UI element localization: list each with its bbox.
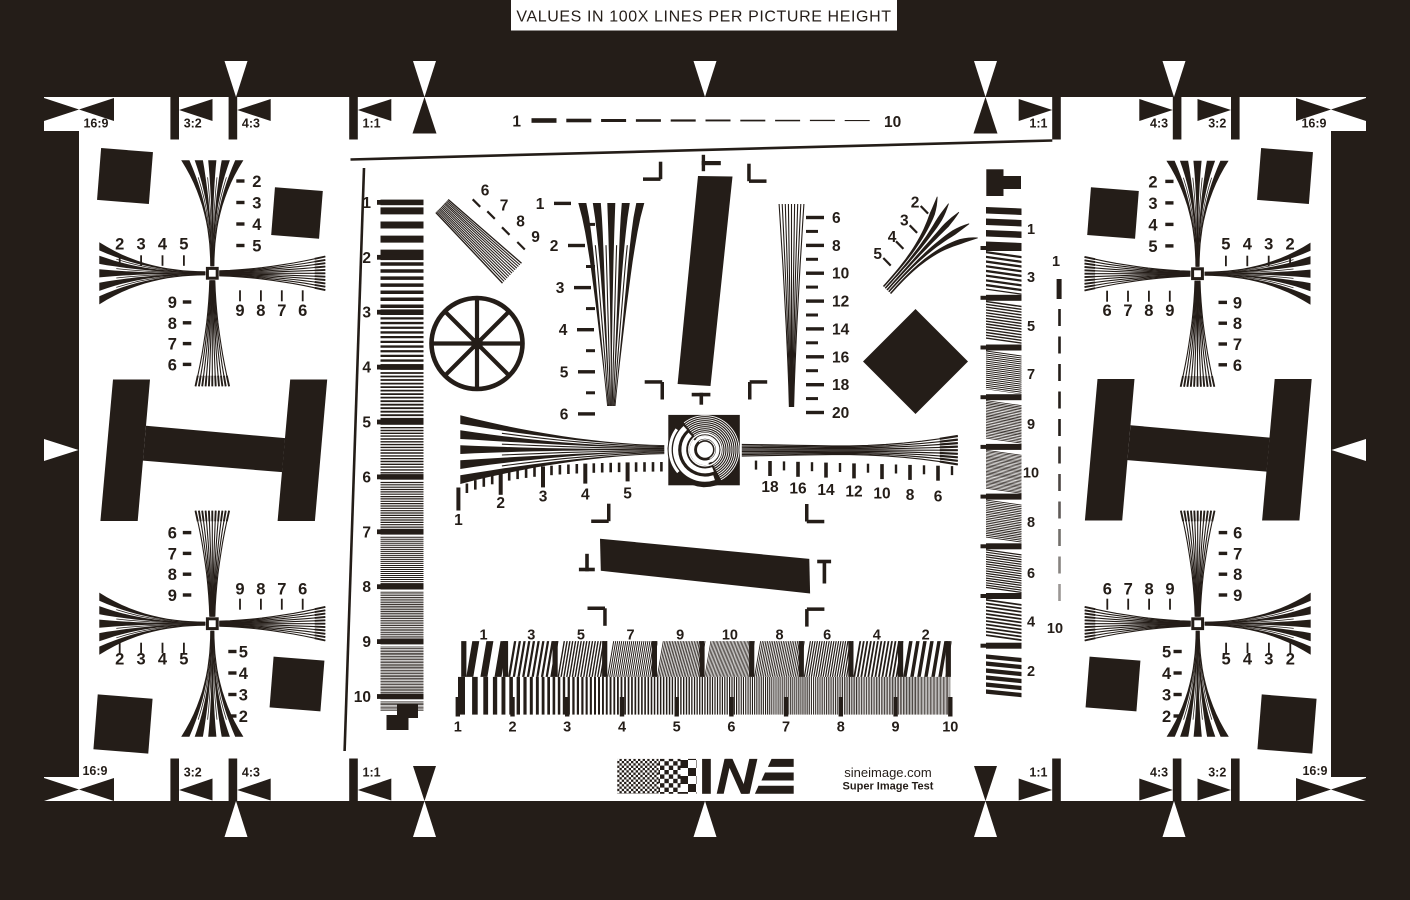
svg-text:9: 9 [1165, 302, 1174, 320]
svg-text:3: 3 [1162, 687, 1171, 705]
svg-text:7: 7 [362, 524, 371, 541]
svg-text:1:1: 1:1 [363, 117, 381, 131]
svg-text:4:3: 4:3 [242, 766, 260, 780]
svg-text:2: 2 [1286, 651, 1295, 669]
svg-text:1:1: 1:1 [363, 766, 381, 780]
svg-text:6: 6 [823, 628, 831, 644]
svg-text:4: 4 [158, 651, 168, 669]
svg-text:3: 3 [556, 280, 565, 297]
svg-text:1: 1 [454, 512, 463, 529]
svg-text:5: 5 [1027, 319, 1035, 335]
svg-text:18: 18 [761, 479, 779, 496]
svg-text:18: 18 [832, 377, 850, 394]
svg-text:4: 4 [1162, 665, 1172, 683]
svg-text:6: 6 [727, 720, 735, 736]
svg-text:4:3: 4:3 [1150, 117, 1168, 131]
svg-text:8: 8 [1233, 315, 1242, 333]
svg-text:7: 7 [782, 720, 790, 736]
svg-text:5: 5 [673, 720, 681, 736]
svg-text:5: 5 [239, 644, 248, 662]
svg-text:8: 8 [832, 238, 841, 255]
svg-text:2: 2 [239, 708, 248, 726]
svg-text:2: 2 [550, 238, 559, 255]
svg-text:10: 10 [722, 628, 738, 644]
svg-text:VALUES IN 100X LINES PER PICTU: VALUES IN 100X LINES PER PICTURE HEIGHT [516, 9, 891, 26]
svg-text:14: 14 [832, 321, 850, 338]
svg-text:8: 8 [516, 214, 525, 231]
svg-text:1: 1 [536, 196, 545, 213]
svg-text:10: 10 [832, 266, 849, 283]
svg-text:20: 20 [832, 405, 849, 422]
svg-text:8: 8 [168, 315, 177, 333]
svg-text:6: 6 [1103, 302, 1112, 320]
svg-text:4: 4 [158, 235, 168, 253]
svg-text:8: 8 [906, 487, 915, 504]
svg-text:1: 1 [454, 720, 462, 736]
svg-text:3: 3 [1264, 236, 1273, 254]
svg-text:5: 5 [179, 235, 188, 253]
svg-text:2: 2 [362, 250, 371, 267]
svg-text:2: 2 [1148, 173, 1157, 191]
svg-text:4: 4 [1243, 236, 1253, 254]
svg-text:6: 6 [481, 183, 490, 200]
svg-text:9: 9 [1233, 587, 1242, 605]
svg-text:2: 2 [115, 235, 124, 253]
svg-text:2: 2 [922, 628, 930, 644]
svg-text:5: 5 [362, 415, 371, 432]
svg-text:7: 7 [277, 581, 286, 599]
svg-text:4: 4 [618, 720, 626, 736]
svg-text:5: 5 [179, 651, 188, 669]
svg-text:7: 7 [168, 336, 177, 354]
svg-text:3: 3 [900, 213, 909, 230]
svg-text:12: 12 [845, 484, 862, 501]
svg-text:1: 1 [362, 195, 371, 212]
svg-text:3: 3 [1027, 270, 1035, 286]
svg-text:14: 14 [817, 482, 835, 499]
svg-text:3: 3 [539, 489, 548, 506]
svg-text:6: 6 [1103, 581, 1112, 599]
svg-text:12: 12 [832, 294, 849, 311]
svg-text:6: 6 [1233, 525, 1242, 543]
svg-text:9: 9 [235, 581, 244, 599]
svg-text:9: 9 [1027, 417, 1035, 433]
svg-text:10: 10 [884, 114, 901, 131]
svg-text:7: 7 [1233, 336, 1242, 354]
svg-text:6: 6 [168, 525, 177, 543]
svg-text:1: 1 [1027, 222, 1035, 238]
svg-text:7: 7 [1027, 367, 1035, 383]
svg-text:5: 5 [1221, 236, 1230, 254]
svg-text:4:3: 4:3 [1150, 766, 1168, 780]
svg-text:3:2: 3:2 [184, 117, 202, 131]
svg-text:5: 5 [873, 246, 882, 263]
svg-text:3: 3 [563, 720, 571, 736]
svg-text:3:2: 3:2 [1208, 117, 1226, 131]
svg-text:3: 3 [137, 235, 146, 253]
svg-text:2: 2 [252, 173, 261, 191]
svg-text:8: 8 [256, 302, 265, 320]
svg-text:2: 2 [1286, 236, 1295, 254]
svg-text:3: 3 [362, 305, 371, 322]
svg-text:4: 4 [239, 665, 249, 683]
svg-text:9: 9 [235, 302, 244, 320]
svg-text:10: 10 [354, 689, 371, 706]
svg-text:9: 9 [531, 229, 540, 246]
svg-text:4: 4 [1243, 651, 1253, 669]
svg-text:8: 8 [1027, 515, 1035, 531]
svg-text:8: 8 [1144, 302, 1153, 320]
svg-text:3:2: 3:2 [184, 766, 202, 780]
svg-text:4:3: 4:3 [242, 117, 260, 131]
svg-text:6: 6 [1027, 566, 1035, 582]
svg-text:6: 6 [934, 489, 943, 506]
svg-text:5: 5 [1222, 651, 1231, 669]
svg-text:5: 5 [1148, 238, 1157, 256]
svg-text:6: 6 [168, 356, 177, 374]
svg-text:7: 7 [627, 628, 635, 644]
svg-text:4: 4 [873, 628, 881, 644]
svg-text:8: 8 [775, 628, 783, 644]
svg-text:7: 7 [168, 545, 177, 563]
svg-text:8: 8 [1233, 566, 1242, 584]
svg-text:6: 6 [832, 210, 841, 227]
svg-text:3: 3 [252, 195, 261, 213]
svg-text:1: 1 [480, 628, 488, 644]
svg-text:10: 10 [1047, 621, 1063, 637]
svg-text:7: 7 [1123, 302, 1132, 320]
svg-text:4: 4 [252, 216, 262, 234]
svg-text:4: 4 [1148, 216, 1158, 234]
svg-text:10: 10 [942, 720, 958, 736]
svg-text:4: 4 [362, 360, 371, 377]
svg-text:3:2: 3:2 [1208, 766, 1226, 780]
svg-text:5: 5 [252, 238, 261, 256]
svg-text:4: 4 [559, 322, 568, 339]
svg-text:8: 8 [256, 581, 265, 599]
svg-text:9: 9 [892, 720, 900, 736]
svg-text:2: 2 [1027, 664, 1035, 680]
svg-text:6: 6 [560, 406, 569, 423]
svg-text:5: 5 [560, 364, 569, 381]
svg-text:9: 9 [168, 587, 177, 605]
svg-text:8: 8 [1145, 581, 1154, 599]
svg-text:4: 4 [581, 486, 590, 503]
svg-text:3: 3 [239, 687, 248, 705]
svg-text:16:9: 16:9 [82, 764, 107, 778]
svg-text:10: 10 [873, 485, 890, 502]
svg-text:16:9: 16:9 [1302, 764, 1327, 778]
svg-text:2: 2 [911, 195, 920, 212]
svg-text:4: 4 [1027, 615, 1035, 631]
svg-text:7: 7 [277, 302, 286, 320]
svg-text:10: 10 [1023, 466, 1039, 482]
svg-text:2: 2 [115, 651, 124, 669]
svg-text:sineimage.com: sineimage.com [844, 765, 931, 780]
svg-text:1: 1 [1052, 254, 1060, 270]
svg-text:1:1: 1:1 [1029, 117, 1047, 131]
svg-text:3: 3 [527, 628, 535, 644]
svg-text:2: 2 [508, 720, 516, 736]
svg-text:9: 9 [362, 634, 371, 651]
svg-text:5: 5 [577, 628, 585, 644]
svg-text:8: 8 [168, 566, 177, 584]
svg-text:2: 2 [1162, 708, 1171, 726]
svg-text:8: 8 [837, 720, 845, 736]
svg-text:7: 7 [1233, 545, 1242, 563]
svg-text:4: 4 [888, 229, 897, 246]
svg-text:8: 8 [362, 579, 371, 596]
svg-text:9: 9 [676, 628, 684, 644]
svg-text:1: 1 [512, 114, 521, 131]
svg-text:5: 5 [1162, 644, 1171, 662]
svg-text:6: 6 [298, 302, 307, 320]
svg-text:3: 3 [137, 651, 146, 669]
svg-text:6: 6 [298, 581, 307, 599]
svg-text:3: 3 [1264, 651, 1273, 669]
svg-text:6: 6 [362, 469, 371, 486]
svg-text:16: 16 [789, 481, 807, 498]
svg-text:1:1: 1:1 [1029, 766, 1047, 780]
svg-text:16: 16 [832, 349, 850, 366]
svg-text:16:9: 16:9 [83, 117, 108, 131]
svg-text:2: 2 [496, 495, 505, 512]
svg-text:9: 9 [1233, 294, 1242, 312]
svg-text:7: 7 [500, 198, 509, 215]
svg-text:6: 6 [1233, 357, 1242, 375]
svg-text:16:9: 16:9 [1301, 117, 1326, 131]
svg-text:5: 5 [623, 486, 632, 503]
svg-text:3: 3 [1148, 195, 1157, 213]
svg-text:7: 7 [1124, 581, 1133, 599]
svg-text:9: 9 [168, 294, 177, 312]
svg-text:Super Image Test: Super Image Test [843, 781, 934, 793]
svg-text:9: 9 [1165, 581, 1174, 599]
